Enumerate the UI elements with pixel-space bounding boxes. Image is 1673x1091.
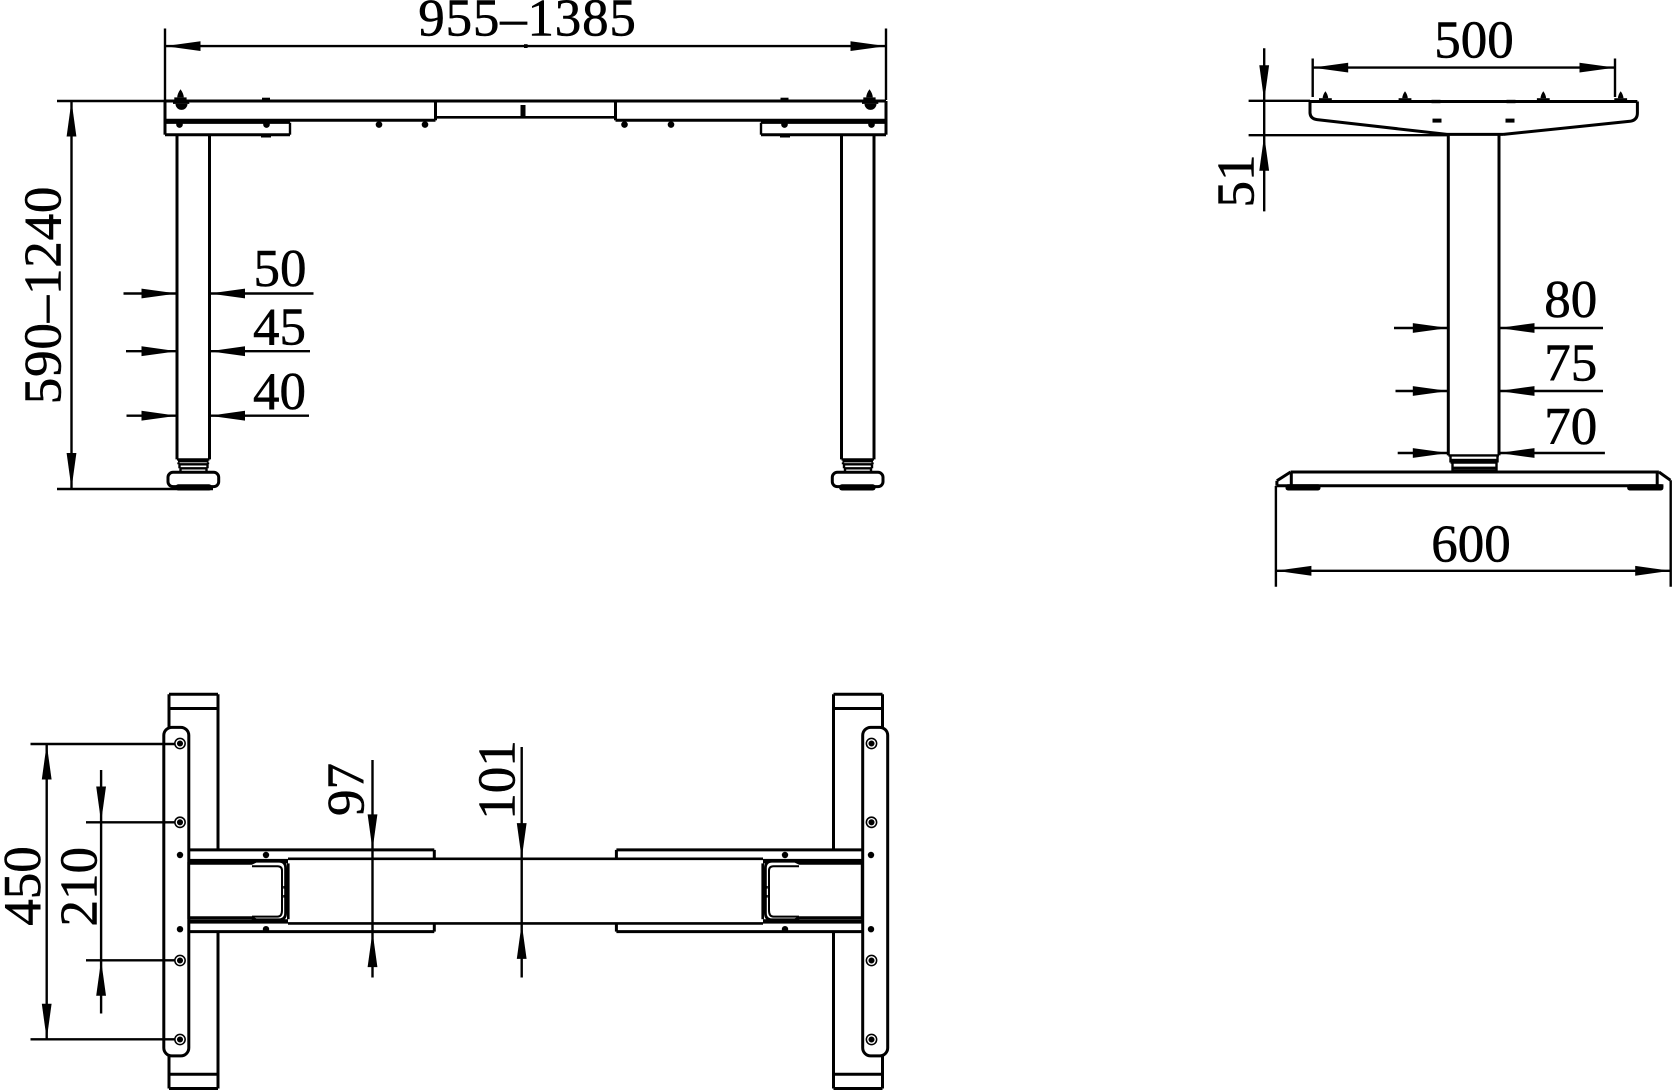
- svg-text:75: 75: [1544, 335, 1597, 393]
- svg-text:40: 40: [253, 363, 306, 421]
- svg-text:45: 45: [253, 299, 306, 357]
- svg-text:600: 600: [1431, 516, 1511, 574]
- svg-text:50: 50: [254, 240, 307, 298]
- svg-text:70: 70: [1544, 398, 1597, 456]
- svg-text:51: 51: [1208, 155, 1266, 208]
- svg-text:955–1385: 955–1385: [418, 0, 636, 48]
- svg-text:590–1240: 590–1240: [15, 186, 73, 404]
- svg-text:97: 97: [318, 763, 376, 816]
- svg-text:210: 210: [51, 847, 109, 927]
- svg-text:80: 80: [1544, 271, 1597, 329]
- svg-text:450: 450: [0, 846, 52, 926]
- svg-text:101: 101: [469, 740, 527, 820]
- svg-text:500: 500: [1434, 12, 1514, 70]
